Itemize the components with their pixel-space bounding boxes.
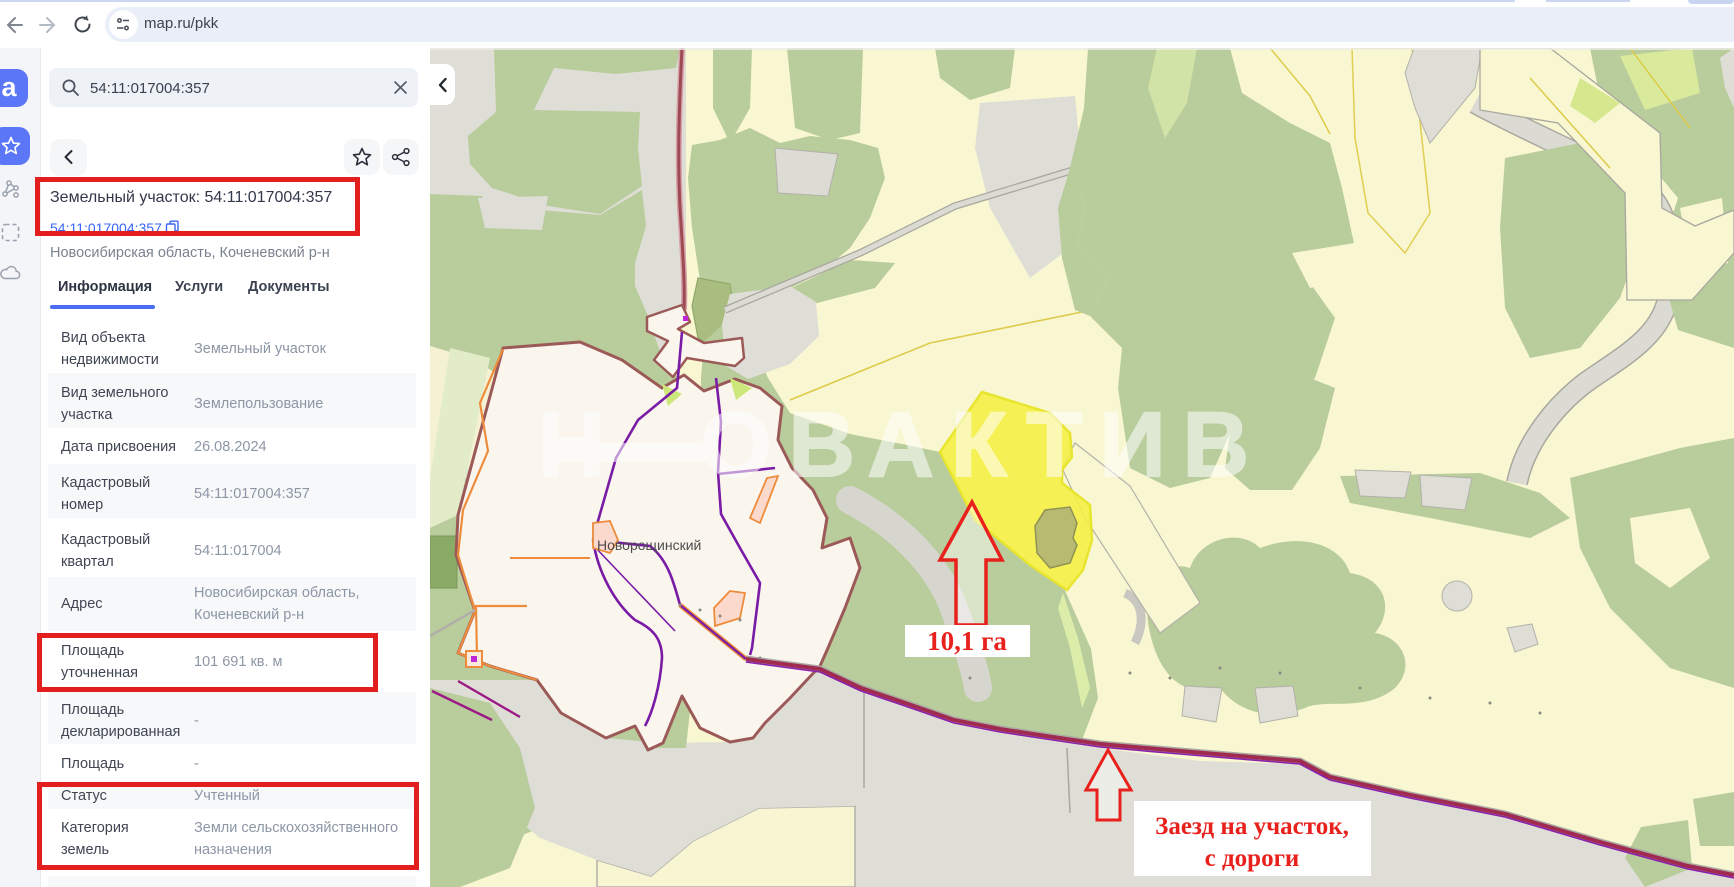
svg-text:Заезд на участок,: Заезд на участок, <box>1155 813 1349 840</box>
svg-text:с дороги: с дороги <box>1205 845 1300 872</box>
svg-text:Новорощинский: Новорощинский <box>597 537 701 553</box>
svg-text:ОВАКТИВ: ОВАКТИВ <box>700 394 1266 496</box>
svg-text:10,1 га: 10,1 га <box>927 626 1007 656</box>
